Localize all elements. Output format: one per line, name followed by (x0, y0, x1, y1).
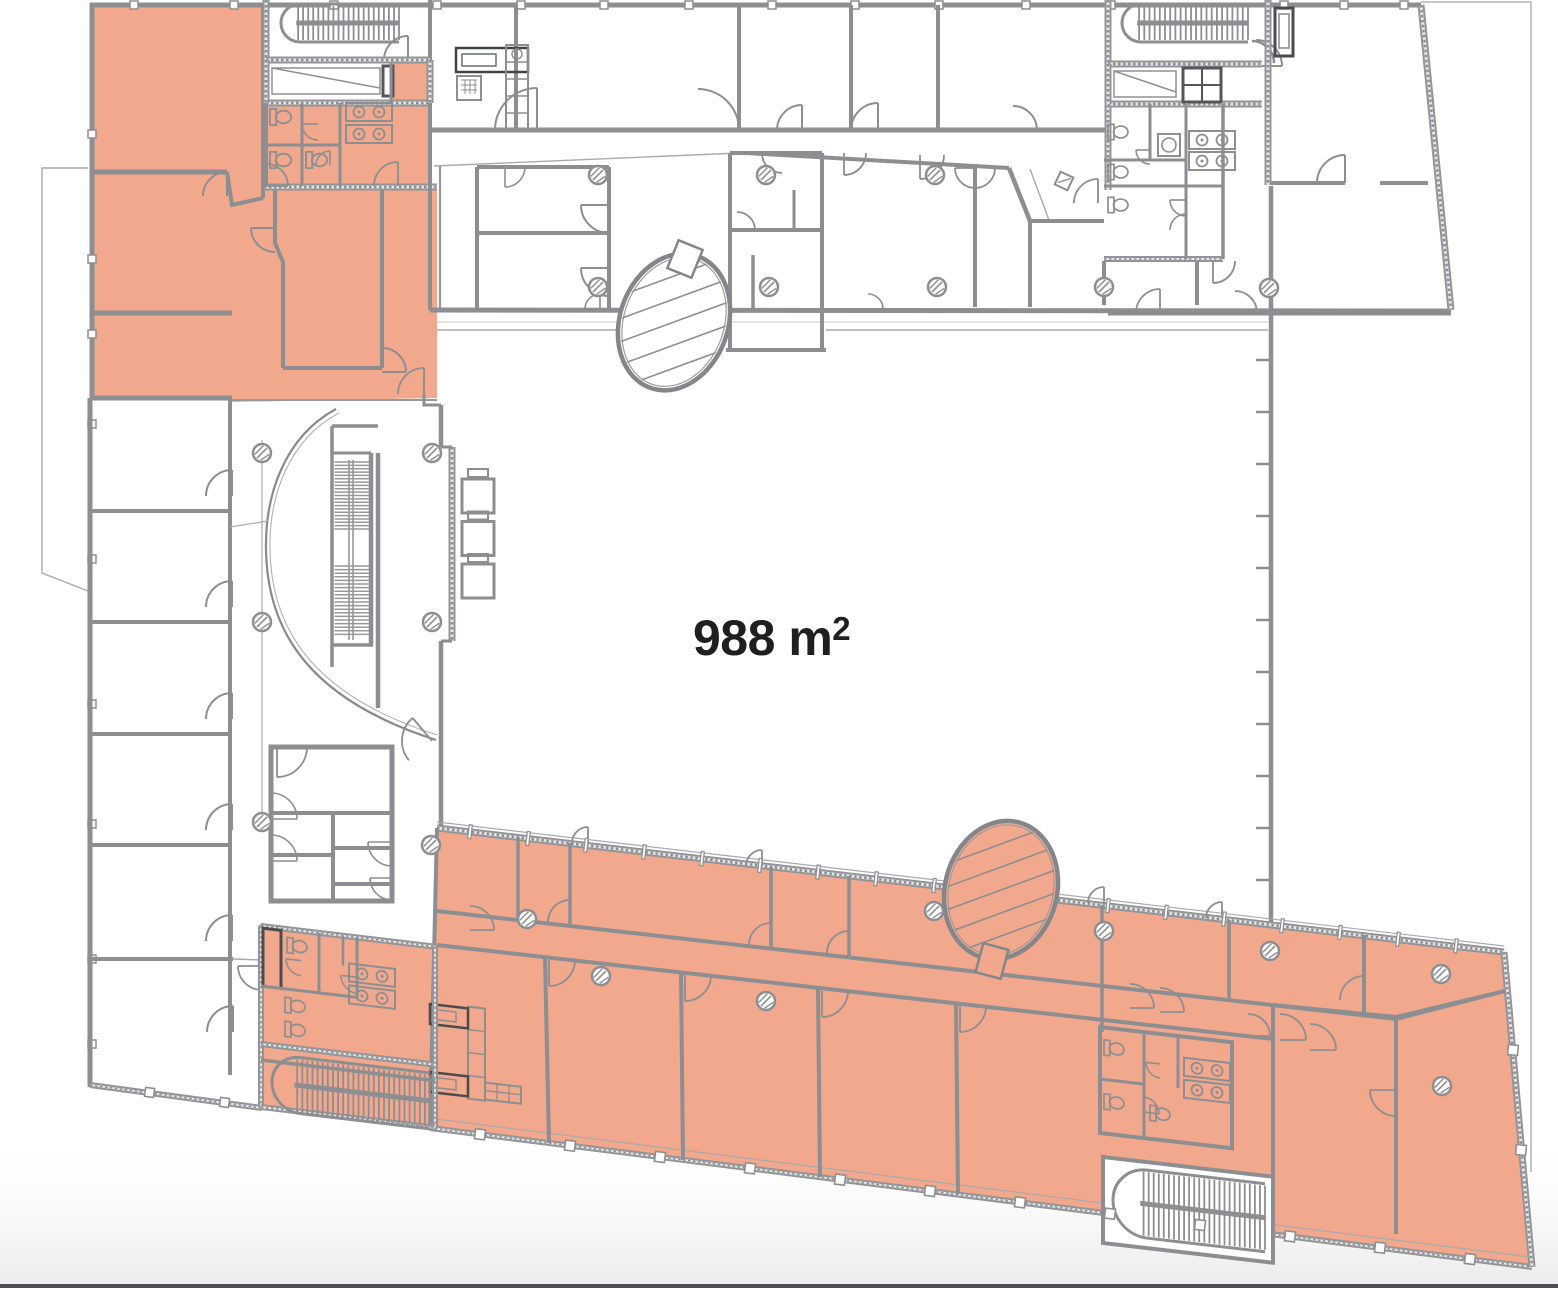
svg-text:988 m2: 988 m2 (693, 610, 850, 666)
